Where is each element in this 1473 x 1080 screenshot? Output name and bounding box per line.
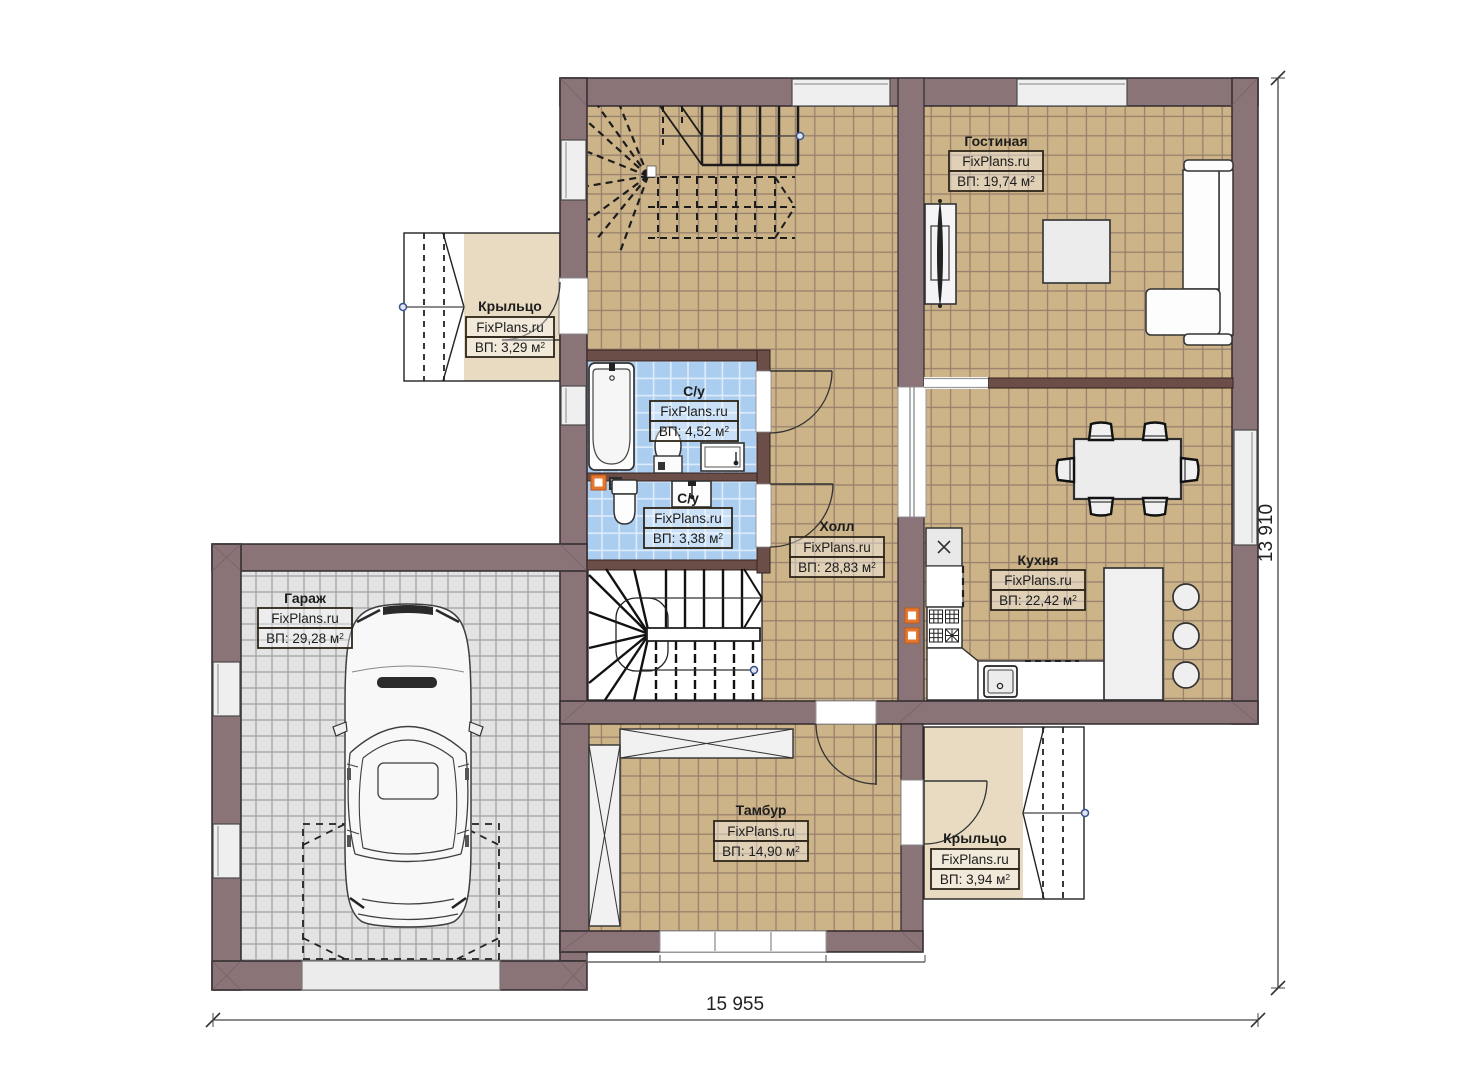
svg-text:С/у: С/у bbox=[677, 490, 699, 506]
svg-text:Крыльцо: Крыльцо bbox=[943, 830, 1007, 846]
svg-text:Гараж: Гараж bbox=[284, 590, 327, 606]
svg-text:Тамбур: Тамбур bbox=[736, 802, 787, 818]
svg-text:13 910: 13 910 bbox=[1256, 504, 1277, 562]
svg-text:FixPlans.ru: FixPlans.ru bbox=[654, 511, 722, 526]
svg-text:Гостиная: Гостиная bbox=[964, 133, 1027, 149]
svg-text:Кухня: Кухня bbox=[1018, 552, 1059, 568]
svg-text:ВП: 29,28 м2: ВП: 29,28 м2 bbox=[266, 631, 344, 646]
svg-text:ВП: 22,42 м2: ВП: 22,42 м2 bbox=[999, 593, 1077, 608]
svg-text:Крыльцо: Крыльцо bbox=[478, 298, 542, 314]
svg-text:ВП: 28,83 м2: ВП: 28,83 м2 bbox=[798, 560, 876, 575]
svg-text:ВП: 3,94 м2: ВП: 3,94 м2 bbox=[940, 872, 1011, 887]
svg-text:Холл: Холл bbox=[819, 518, 854, 534]
svg-text:FixPlans.ru: FixPlans.ru bbox=[941, 852, 1009, 867]
svg-text:FixPlans.ru: FixPlans.ru bbox=[476, 320, 544, 335]
svg-text:ВП: 19,74 м2: ВП: 19,74 м2 bbox=[957, 174, 1035, 189]
svg-text:С/у: С/у bbox=[683, 383, 705, 399]
svg-text:15 955: 15 955 bbox=[706, 994, 764, 1015]
svg-text:ВП: 3,38 м2: ВП: 3,38 м2 bbox=[653, 531, 724, 546]
svg-text:FixPlans.ru: FixPlans.ru bbox=[1004, 573, 1072, 588]
svg-text:FixPlans.ru: FixPlans.ru bbox=[271, 611, 339, 626]
svg-text:FixPlans.ru: FixPlans.ru bbox=[962, 154, 1030, 169]
svg-text:ВП: 4,52 м2: ВП: 4,52 м2 bbox=[659, 424, 730, 439]
svg-text:FixPlans.ru: FixPlans.ru bbox=[803, 540, 871, 555]
svg-text:FixPlans.ru: FixPlans.ru bbox=[727, 824, 795, 839]
svg-text:ВП: 3,29 м2: ВП: 3,29 м2 bbox=[475, 340, 546, 355]
svg-text:FixPlans.ru: FixPlans.ru bbox=[660, 404, 728, 419]
svg-text:ВП: 14,90 м2: ВП: 14,90 м2 bbox=[722, 844, 800, 859]
